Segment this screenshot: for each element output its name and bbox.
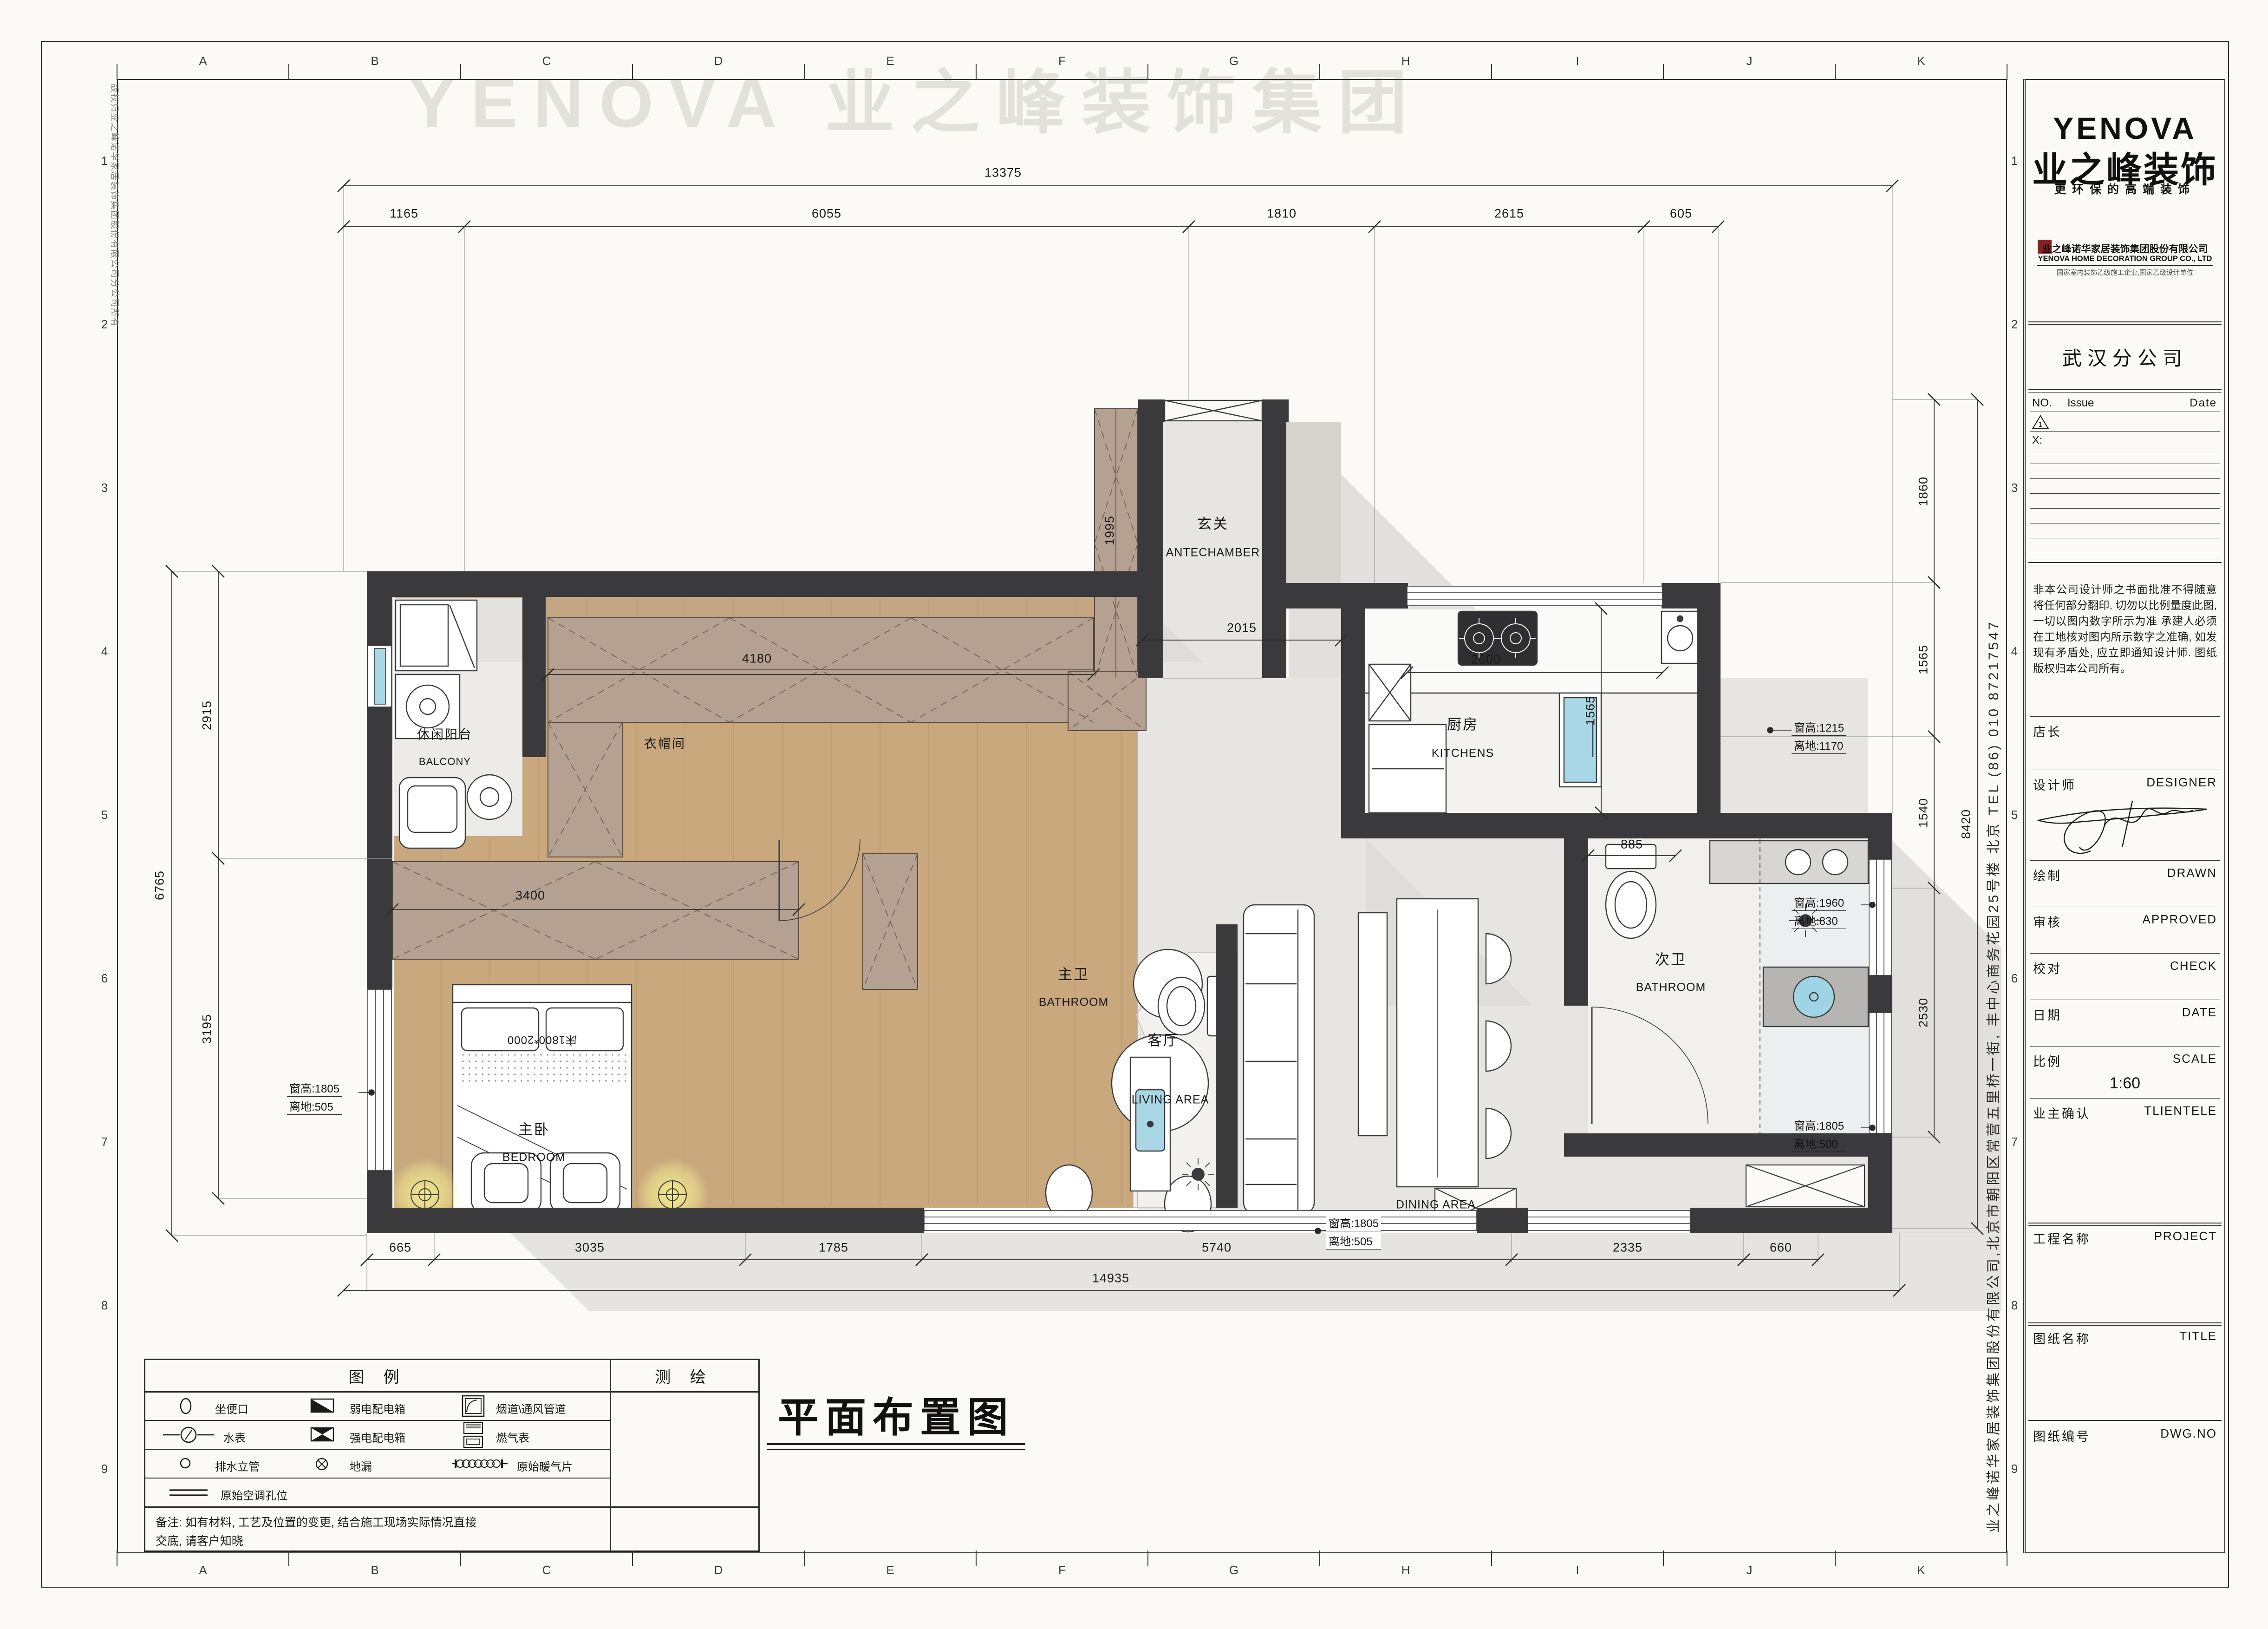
- date-label-en: DATE: [2182, 1005, 2217, 1020]
- company-name-cn: 业之峰诺华家居装饰集团股份有限公司: [2026, 242, 2224, 255]
- dim-top-3: 1810: [1267, 208, 1297, 220]
- bed-size-label: 床1800*2000: [507, 1034, 577, 1045]
- drawn-label-en: DRAWN: [2167, 866, 2217, 880]
- dim-right-1: 1860: [1917, 477, 1930, 506]
- date-label-cn: 日期: [2033, 1005, 2062, 1023]
- room-label-dining-en: DINING AREA: [1396, 1199, 1476, 1211]
- sheet-title-label-cn: 图纸名称: [2033, 1329, 2091, 1347]
- room-label-bath1-en: BATHROOM: [1039, 997, 1109, 1008]
- zone-number-left: 7: [101, 1136, 108, 1148]
- zone-number-left: 9: [101, 1463, 108, 1475]
- zone-letter-top: D: [714, 55, 723, 67]
- annotation-left-window: 窗高:1805 离地:505: [287, 1079, 342, 1115]
- dim-cloak: 4180: [742, 653, 772, 665]
- zone-letter-top: H: [1401, 55, 1410, 67]
- legend-item-radiator: 原始暖气片: [517, 1458, 573, 1474]
- zone-number-right: 9: [2011, 1463, 2018, 1475]
- annotation-right-window: 窗高:1805 离地:500: [1792, 1116, 1846, 1152]
- title-block: YENOVA 业之峰装饰 更环保的高端装饰 业之峰诺华家居装饰集团股份有限公司 …: [2023, 79, 2225, 1553]
- dim-top-2: 6055: [812, 208, 841, 220]
- copyright-vertical-text: 版权归业之峰诺华家居装饰集团股份有限公司分公司所有: [109, 84, 122, 327]
- toilet-symbol-icon: [176, 1396, 196, 1416]
- dim-bottom-3: 1785: [819, 1242, 848, 1254]
- zone-letter-top: J: [1747, 55, 1753, 67]
- dim-left-2: 3195: [201, 1014, 214, 1044]
- designer-signature: [2035, 792, 2216, 861]
- manager-label: 店长: [2033, 722, 2062, 740]
- dim-kitchen-door: 1565: [1584, 696, 1597, 726]
- dim-bottom-6: 660: [1770, 1242, 1792, 1254]
- drawing-sheet: YENOVA 业之峰装饰集团: [0, 0, 2268, 1629]
- disclaimer-text: 非本公司设计师之书面批准不得随意将任何部分翻印. 切勿以比例量度此图, 一切以图…: [2033, 582, 2217, 676]
- scale-label-cn: 比例: [2033, 1052, 2062, 1070]
- room-label-living-en: LIVING AREA: [1132, 1094, 1209, 1106]
- zone-letter-bottom: I: [1576, 1564, 1579, 1576]
- legend-item-gasmeter: 燃气表: [496, 1429, 529, 1445]
- scale-label-en: SCALE: [2173, 1052, 2217, 1066]
- rev-x-label: X:: [2032, 434, 2042, 446]
- zone-letter-bottom: D: [714, 1564, 723, 1576]
- ac-hole-icon: [168, 1485, 209, 1500]
- zone-letter-top: K: [1917, 55, 1925, 67]
- yenova-logo: YENOVA: [2026, 111, 2224, 146]
- annotation-bottom-window: 窗高:1805 离地:505: [1326, 1213, 1381, 1250]
- dim-right-4: 2530: [1917, 998, 1930, 1027]
- zone-letter-bottom: C: [542, 1564, 551, 1576]
- zone-letter-top: B: [371, 55, 378, 67]
- zone-number-right: 3: [2011, 482, 2018, 494]
- company-name-en: YENOVA HOME DECORATION GROUP CO., LTD: [2037, 255, 2213, 266]
- zone-letter-bottom: B: [371, 1564, 378, 1576]
- room-label-bedroom-en: BEDROOM: [502, 1152, 566, 1164]
- approved-label-cn: 审核: [2033, 912, 2062, 930]
- svg-text:1: 1: [2039, 421, 2043, 429]
- drawing-title: 平面布置图: [778, 1397, 1015, 1438]
- zone-number-right: 2: [2011, 318, 2018, 330]
- dim-bottom-2: 3035: [575, 1242, 605, 1254]
- room-label-balcony-en: BALCONY: [419, 757, 471, 767]
- dim-entry: 2015: [1227, 622, 1257, 635]
- dim-kitchen-window: 2600: [1471, 654, 1501, 666]
- zone-letter-top: I: [1576, 55, 1579, 67]
- branch-name: 武汉分公司: [2062, 349, 2188, 368]
- zone-number-right: 6: [2011, 972, 2018, 984]
- zone-number-left: 4: [101, 645, 108, 657]
- dim-entry-wardrobe: 1995: [1104, 516, 1116, 545]
- drawing-title-underline2: [767, 1449, 1025, 1450]
- dim-bottom-4: 5740: [1202, 1242, 1232, 1254]
- zone-letter-bottom: K: [1917, 1564, 1925, 1576]
- water-meter-icon: [163, 1425, 214, 1445]
- zone-number-right: 4: [2011, 645, 2018, 657]
- drain-pipe-icon: [178, 1456, 193, 1471]
- radiator-icon: [452, 1456, 508, 1472]
- client-label-en: TLIENTELE: [2144, 1104, 2217, 1118]
- zone-number-left: 2: [101, 318, 108, 330]
- project-label-en: PROJECT: [2154, 1229, 2217, 1243]
- rev-no-label: NO.: [2032, 397, 2052, 410]
- zone-number-left: 6: [101, 972, 108, 984]
- zone-number-right: 8: [2011, 1299, 2018, 1311]
- dim-bottom-total: 14935: [1092, 1272, 1129, 1285]
- high-voltage-box-icon: [310, 1426, 334, 1443]
- legend-item-floordrain: 地漏: [350, 1458, 372, 1474]
- sheet-title-label-en: TITLE: [2179, 1329, 2217, 1343]
- zone-letter-top: C: [542, 55, 551, 67]
- dim-right-total: 8420: [1960, 809, 1973, 839]
- room-label-bath1-cn: 主卫: [1058, 968, 1089, 982]
- dim-bottom-1: 665: [389, 1242, 411, 1254]
- legend-item-watermeter: 水表: [223, 1429, 246, 1445]
- zone-number-left: 1: [101, 155, 108, 167]
- legend-survey-header: 测 绘: [655, 1365, 713, 1387]
- dim-top-4: 2615: [1494, 208, 1524, 220]
- dim-top-1: 1165: [390, 208, 418, 220]
- scale-value: 1:60: [2110, 1075, 2140, 1091]
- zone-letter-top: E: [886, 55, 894, 67]
- dim-right-3: 1540: [1917, 798, 1930, 828]
- legend-item-drainpipe: 排水立管: [215, 1458, 260, 1474]
- room-label-entry-en: ANTECHAMBER: [1166, 547, 1260, 559]
- zone-number-right: 1: [2011, 155, 2018, 167]
- company-credential: 国家室内装饰乙级施工企业,国家乙级设计单位: [2026, 268, 2224, 277]
- check-label-en: CHECK: [2170, 959, 2217, 973]
- zone-number-right: 5: [2011, 809, 2018, 821]
- legend-item-achole: 原始空调孔位: [221, 1486, 287, 1503]
- room-label-kitchen-en: KITCHENS: [1432, 748, 1494, 759]
- legend-item-toilet: 坐便口: [215, 1400, 248, 1416]
- legend-note-1: 备注: 如有材料, 工艺及位置的变更, 结合施工现场实际情况直接: [156, 1513, 477, 1530]
- room-label-cloak-cn: 衣帽间: [644, 738, 686, 751]
- logo-slogan: 更环保的高端装饰: [2026, 180, 2224, 197]
- legend-header: 图 例: [348, 1365, 406, 1387]
- zone-letter-bottom: G: [1229, 1564, 1238, 1576]
- zone-number-left: 5: [101, 809, 108, 821]
- designer-label-en: DESIGNER: [2146, 775, 2217, 790]
- room-label-bath2-en: BATHROOM: [1636, 982, 1706, 994]
- annotation-kitchen-window: 窗高:1215 离地:1170: [1792, 718, 1846, 754]
- room-label-bath2-cn: 次卫: [1655, 953, 1687, 967]
- legend-item-highvolt: 强电配电箱: [350, 1429, 405, 1445]
- dim-left-total: 6765: [154, 870, 166, 900]
- drawn-label-cn: 绘制: [2033, 866, 2062, 884]
- room-label-bedroom-cn: 主卧: [518, 1123, 550, 1137]
- annotation-bath-window: 窗高:1960 离地:830: [1792, 893, 1846, 929]
- approved-label-en: APPROVED: [2143, 912, 2217, 927]
- zone-number-left: 3: [101, 482, 108, 494]
- check-label-cn: 校对: [2033, 959, 2062, 977]
- rev-date-label: Date: [2190, 397, 2217, 410]
- gas-meter-icon: [462, 1421, 484, 1448]
- revision-triangle-icon: 1: [2031, 414, 2050, 430]
- zone-letter-top: G: [1229, 55, 1238, 67]
- rev-issue-label: Issue: [2067, 397, 2094, 410]
- floor-drain-icon: [313, 1456, 330, 1472]
- designer-label-cn: 设计师: [2033, 775, 2076, 793]
- dim-top-total: 13375: [984, 167, 1022, 179]
- room-label-balcony-cn: 休闲阳台: [417, 729, 473, 741]
- room-label-entry-cn: 玄关: [1197, 517, 1229, 531]
- dim-left-1: 2915: [201, 700, 214, 730]
- zone-letter-top: F: [1058, 55, 1066, 67]
- zone-number-right: 7: [2011, 1136, 2018, 1148]
- legend-note-2: 交底, 请客户知晓: [156, 1532, 243, 1549]
- room-label-kitchen-cn: 厨房: [1447, 718, 1479, 732]
- zone-letter-bottom: A: [199, 1564, 207, 1576]
- dwg-no-label-en: DWG.NO: [2160, 1426, 2217, 1441]
- room-label-living-cn: 客厅: [1147, 1034, 1179, 1048]
- dim-top-5: 605: [1670, 208, 1692, 220]
- zone-letter-bottom: J: [1747, 1564, 1753, 1576]
- legend-item-flue: 烟道\通风管道: [496, 1400, 566, 1416]
- low-voltage-box-icon: [310, 1397, 334, 1414]
- dim-bottom-5: 2335: [1613, 1242, 1642, 1254]
- zone-letter-bottom: E: [886, 1564, 894, 1576]
- legend-table: 图 例 测 绘 坐便口 弱电配电箱 烟道\通风管道 水表 强电配电箱: [144, 1359, 760, 1552]
- dim-bath2: 885: [1621, 838, 1643, 851]
- drawing-title-underline: [767, 1443, 1025, 1445]
- client-label-cn: 业主确认: [2033, 1104, 2091, 1122]
- company-address-vertical-text: 业之峰诺华家居装饰集团股份有限公司,北京市朝阳区常营五里桥一街, 丰中心商务花园…: [1982, 620, 2002, 1533]
- zone-letter-bottom: H: [1401, 1564, 1410, 1576]
- zone-letter-bottom: F: [1058, 1564, 1066, 1576]
- zone-letter-top: A: [199, 55, 207, 67]
- dwg-no-label-cn: 图纸编号: [2033, 1426, 2091, 1445]
- zone-number-left: 8: [101, 1299, 108, 1311]
- flue-duct-icon: [461, 1394, 485, 1418]
- project-label-cn: 工程名称: [2033, 1229, 2091, 1247]
- dim-right-2: 1565: [1917, 645, 1930, 674]
- legend-item-lowvolt: 弱电配电箱: [350, 1400, 405, 1416]
- dim-bed-wardrobe: 3400: [515, 890, 545, 902]
